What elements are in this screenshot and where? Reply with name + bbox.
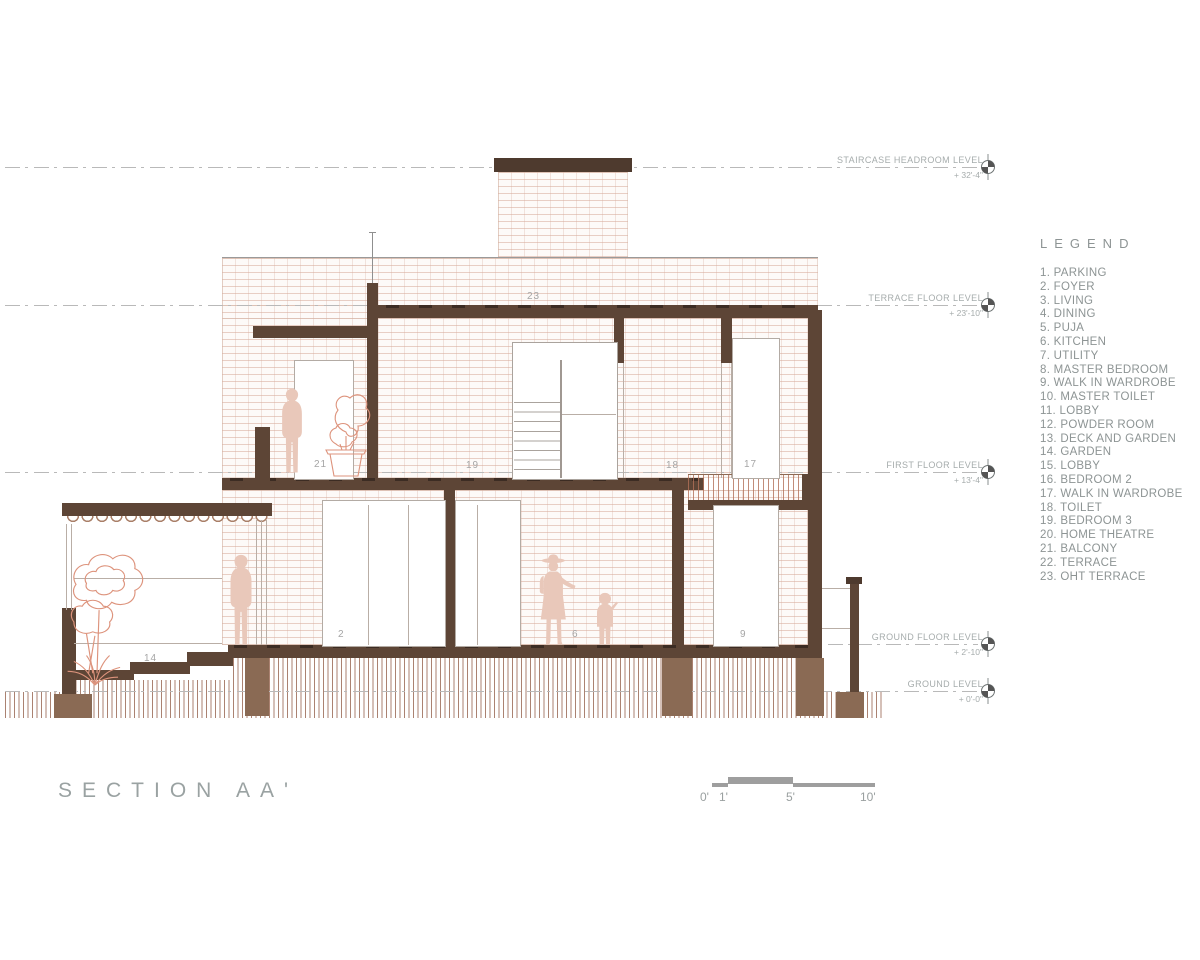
balcony-parapet (255, 427, 270, 490)
legend-item: 3. LIVING (1040, 295, 1183, 309)
wardrobe9-door (713, 505, 779, 647)
legend-item: 16. BEDROOM 2 (1040, 474, 1183, 488)
legend-item: 18. TOILET (1040, 502, 1183, 516)
foyer-door (322, 500, 446, 647)
room-label-bedroom3: 19 (466, 460, 479, 471)
drawing-title: SECTION AA' (58, 779, 298, 803)
level-label: GROUND FLOOR LEVEL (733, 632, 983, 642)
legend-item: 23. OHT TERRACE (1040, 571, 1183, 585)
level-marker-icon (978, 292, 998, 318)
level-marker-icon (978, 631, 998, 657)
fence-rail (822, 588, 850, 589)
legend-item: 9. WALK IN WARDROBE (1040, 377, 1183, 391)
level-label: TERRACE FLOOR LEVEL (733, 293, 983, 303)
window-frame (261, 520, 262, 645)
level-value: + 0'-0" (733, 694, 983, 704)
room-label-garden: 14 (144, 653, 157, 664)
legend-list: 1. PARKING2. FOYER3. LIVING4. DINING5. P… (1040, 267, 1183, 584)
scale-tick: 5' (786, 790, 795, 804)
wall-line (623, 363, 624, 478)
fence-post-cap (846, 577, 862, 584)
legend-item: 14. GARDEN (1040, 446, 1183, 460)
legend-item: 22. TERRACE (1040, 557, 1183, 571)
foyer-door-frame (368, 505, 369, 645)
legend-title: LEGEND (1040, 236, 1183, 251)
lightning-arrester (372, 232, 373, 283)
level-line-staircase-headroom (5, 167, 980, 168)
level-marker-icon (978, 678, 998, 704)
level-label: STAIRCASE HEADROOM LEVEL (733, 155, 983, 165)
oht-roof-slab (494, 158, 632, 172)
wall-stub-18-17 (721, 313, 732, 363)
lightning-arrester-tick (369, 232, 376, 233)
room-label-oht-terrace: 23 (527, 291, 540, 302)
section-drawing-sheet: 23 21 19 18 17 2 6 9 14 STAIRCASE HEADRO… (0, 0, 1200, 960)
scale-tick: 1' (719, 790, 728, 804)
garden-plant (55, 545, 160, 693)
step-upper (187, 652, 233, 666)
balcony-roof-beam (253, 326, 378, 338)
footing-foyer-wall (245, 658, 269, 716)
scale-bar-segment (793, 783, 875, 787)
scale-tick: 10' (860, 790, 876, 804)
stair-treads (514, 402, 561, 478)
stair-railing (560, 360, 562, 478)
scale-bar-segment (728, 777, 793, 784)
stair-landing-line (562, 414, 616, 415)
legend-item: 21. BALCONY (1040, 543, 1183, 557)
legend-item: 7. UTILITY (1040, 350, 1183, 364)
legend-item: 17. WALK IN WARDROBE (1040, 488, 1183, 502)
level-marker-icon (978, 154, 998, 180)
legend-item: 10. MASTER TOILET (1040, 391, 1183, 405)
wardrobe17-door (732, 338, 780, 479)
wall-kitchen-wardrobe (672, 490, 684, 645)
level-value: + 32'-4" (733, 170, 983, 180)
legend-item: 11. LOBBY (1040, 405, 1183, 419)
room-label-kitchen: 6 (572, 629, 579, 640)
level-marker-icon (978, 459, 998, 485)
legend-item: 2. FOYER (1040, 281, 1183, 295)
legend-item: 5. PUJA (1040, 322, 1183, 336)
scale-tick: 0' (700, 790, 709, 804)
oht-headroom-wall (498, 172, 628, 258)
terrace-parapet-wall (222, 257, 818, 306)
footing-kitchen-wall (662, 658, 692, 716)
level-line-first-floor (5, 472, 980, 473)
scale-bar-segment (712, 783, 728, 787)
kitchen-opening (455, 500, 521, 647)
legend-item: 8. MASTER BEDROOM (1040, 364, 1183, 378)
room-label-balcony: 21 (314, 459, 327, 470)
room-label-foyer: 2 (338, 629, 345, 640)
legend-item: 20. HOME THEATRE (1040, 529, 1183, 543)
foyer-door-frame (408, 505, 409, 645)
person-foyer-figure (224, 553, 258, 648)
room-label-toilet: 18 (666, 460, 679, 471)
level-label: FIRST FLOOR LEVEL (733, 460, 983, 470)
level-value: + 2'-10" (733, 647, 983, 657)
kitchen-opening-frame (477, 505, 478, 645)
legend-item: 6. KITCHEN (1040, 336, 1183, 350)
window-frame (266, 520, 267, 645)
garden-roof-tiles (66, 516, 268, 524)
garden-roof-slab (62, 503, 272, 516)
fence-rail (822, 628, 850, 629)
level-value: + 23'-10" (733, 308, 983, 318)
footing-garden-wall (54, 694, 92, 718)
level-value: + 13'-4" (733, 475, 983, 485)
legend-item: 12. POWDER ROOM (1040, 419, 1183, 433)
wall-line (721, 363, 722, 478)
level-label: GROUND LEVEL (733, 679, 983, 689)
legend-item: 13. DECK AND GARDEN (1040, 433, 1183, 447)
child-kitchen-figure (590, 590, 620, 648)
person-balcony-figure (276, 387, 308, 476)
legend: LEGEND 1. PARKING2. FOYER3. LIVING4. DIN… (1040, 236, 1183, 584)
legend-item: 19. BEDROOM 3 (1040, 515, 1183, 529)
legend-item: 4. DINING (1040, 308, 1183, 322)
legend-item: 15. LOBBY (1040, 460, 1183, 474)
legend-item: 1. PARKING (1040, 267, 1183, 281)
person-kitchen-figure (534, 553, 588, 648)
